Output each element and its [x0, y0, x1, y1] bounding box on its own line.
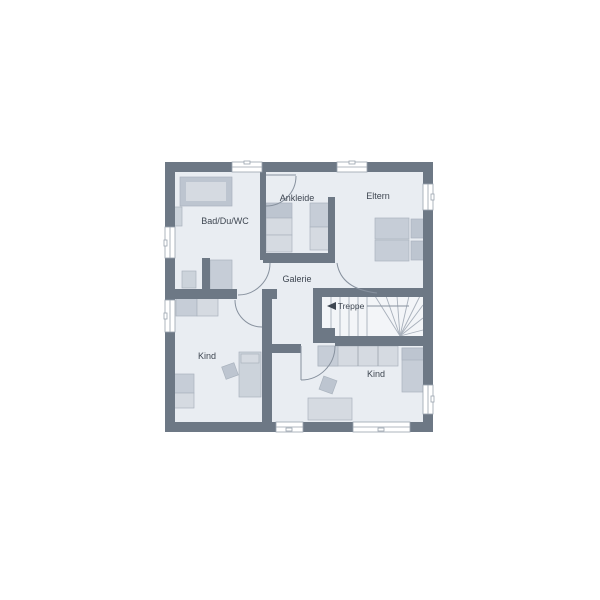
pillow: [241, 354, 259, 363]
shower-icon: [210, 260, 232, 290]
pillow: [411, 219, 424, 238]
wall-segment: [303, 422, 353, 432]
room-label-child-left: Kind: [198, 351, 216, 361]
desk-icon: [308, 398, 352, 420]
room-label-child-right: Kind: [367, 369, 385, 379]
room-label-stairs: Treppe: [338, 301, 365, 311]
wall-segment: [262, 162, 337, 172]
wardrobe-left-icon: [266, 203, 292, 252]
wardrobe-cell: [310, 227, 329, 250]
wall-segment: [165, 332, 175, 432]
bathtub-inner: [186, 182, 226, 201]
wall-segment: [423, 162, 433, 184]
room-label-parents: Eltern: [366, 191, 390, 201]
wall-segment: [165, 162, 232, 172]
toilet-icon: [182, 271, 196, 288]
pillow: [411, 241, 424, 260]
wall-segment: [260, 172, 266, 260]
window: [353, 422, 410, 432]
wardrobe-cell: [310, 203, 329, 227]
wardrobe-cell: [266, 235, 292, 252]
window: [164, 227, 175, 258]
wall-segment: [313, 328, 335, 343]
wall-segment: [263, 253, 335, 263]
wardrobe-cell: [266, 218, 292, 235]
wall-segment: [165, 422, 276, 432]
wall-segment: [272, 344, 301, 353]
window: [164, 300, 175, 332]
wardrobe-cell: [197, 297, 218, 316]
room-label-gallery: Galerie: [282, 274, 311, 284]
wardrobe-right-icon: [310, 203, 329, 250]
wall-segment: [262, 299, 272, 422]
bathtub-icon: [180, 177, 232, 206]
wall-segment: [423, 210, 433, 385]
wall-segment: [423, 414, 433, 432]
wardrobe-cell: [176, 297, 197, 316]
wall-segment: [262, 289, 277, 299]
window: [337, 161, 367, 172]
mattress: [375, 240, 409, 261]
wall-segment: [165, 258, 175, 300]
window: [276, 422, 303, 432]
pillow: [402, 348, 424, 360]
wall-segment: [335, 336, 424, 346]
window: [423, 385, 434, 414]
wall-segment: [165, 162, 175, 227]
floorplan-page: Bad/Du/WC Ankleide Eltern Galerie Treppe…: [0, 0, 600, 600]
desk-icon: [172, 374, 194, 393]
desk-icon: [174, 393, 194, 408]
mattress: [375, 218, 409, 239]
window: [232, 161, 262, 172]
room-label-bathroom: Bad/Du/WC: [201, 216, 249, 226]
room-label-dressing: Ankleide: [280, 193, 315, 203]
floorplan-drawing: Bad/Du/WC Ankleide Eltern Galerie Treppe…: [0, 0, 600, 600]
wardrobe-cell: [266, 203, 292, 218]
wall-segment: [202, 258, 210, 290]
wall-segment: [172, 289, 237, 299]
window: [423, 184, 434, 210]
wall-segment: [313, 288, 322, 330]
